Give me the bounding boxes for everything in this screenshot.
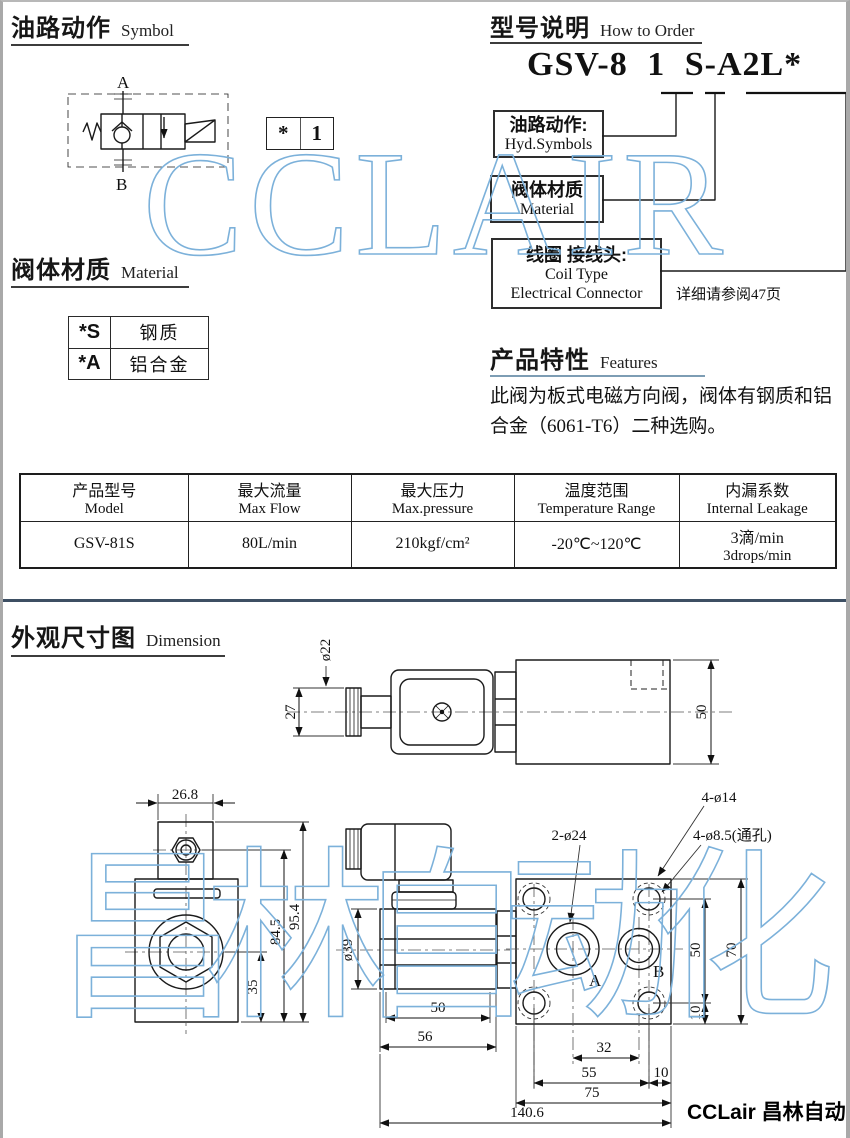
dim-label-56: 56 [418,1029,434,1045]
symbol-port-a-label: A [117,73,130,92]
dim-label-84-5: 84.5 [268,919,284,945]
symbol-port-b-label: B [116,175,127,194]
dimension-drawings: 50 27 ø22 [3,602,850,1138]
hydraulic-symbol-drawing: A B [68,73,228,194]
dim-label-95-4: 95.4 [287,903,303,930]
dim-label-32: 32 [597,1040,612,1056]
dim-label-75: 75 [585,1085,600,1101]
dim-label-o22: ø22 [318,639,334,662]
dim-label-50-block: 50 [688,943,704,958]
middle-side-view-drawing: ø39 50 56 [336,824,516,1052]
port-a-label: A [589,971,602,990]
dim-label-2-o24: 2-ø24 [552,828,587,844]
port-b-label: B [653,962,664,981]
dim-label-35: 35 [245,980,261,995]
dim-label-10-bottom: 10 [654,1065,669,1081]
dim-label-4-o14: 4-ø14 [702,790,737,806]
dim-label-27: 27 [283,704,299,720]
order-connector-lines [602,93,846,271]
dim-label-10-right: 10 [688,1006,704,1021]
dim-label-55: 55 [582,1065,597,1081]
top-diagrams: A B [3,2,850,602]
dim-label-140-6: 140.6 [510,1105,544,1121]
dim-label-o39: ø39 [340,939,356,962]
front-view-drawing: 26.8 35 84.5 95.4 [125,787,309,1034]
block-top-view-drawing: A B 2-ø24 4-ø14 4-ø8.5(通孔) 32 55 10 75 1… [380,790,772,1128]
dim-label-26-8: 26.8 [172,787,198,803]
side-view-drawing: 50 27 ø22 [283,639,733,764]
footer-logo: CCLair 昌林自动化 [687,1096,850,1126]
dim-label-50-coil: 50 [431,1000,446,1016]
dim-label-70: 70 [724,943,740,958]
dim-label-50-side: 50 [694,705,710,720]
datasheet-page: 油路动作 Symbol 型号说明 How to Order 阀体材质 Mater… [0,0,850,1138]
dim-label-4-o8-5: 4-ø8.5(通孔) [693,827,772,844]
